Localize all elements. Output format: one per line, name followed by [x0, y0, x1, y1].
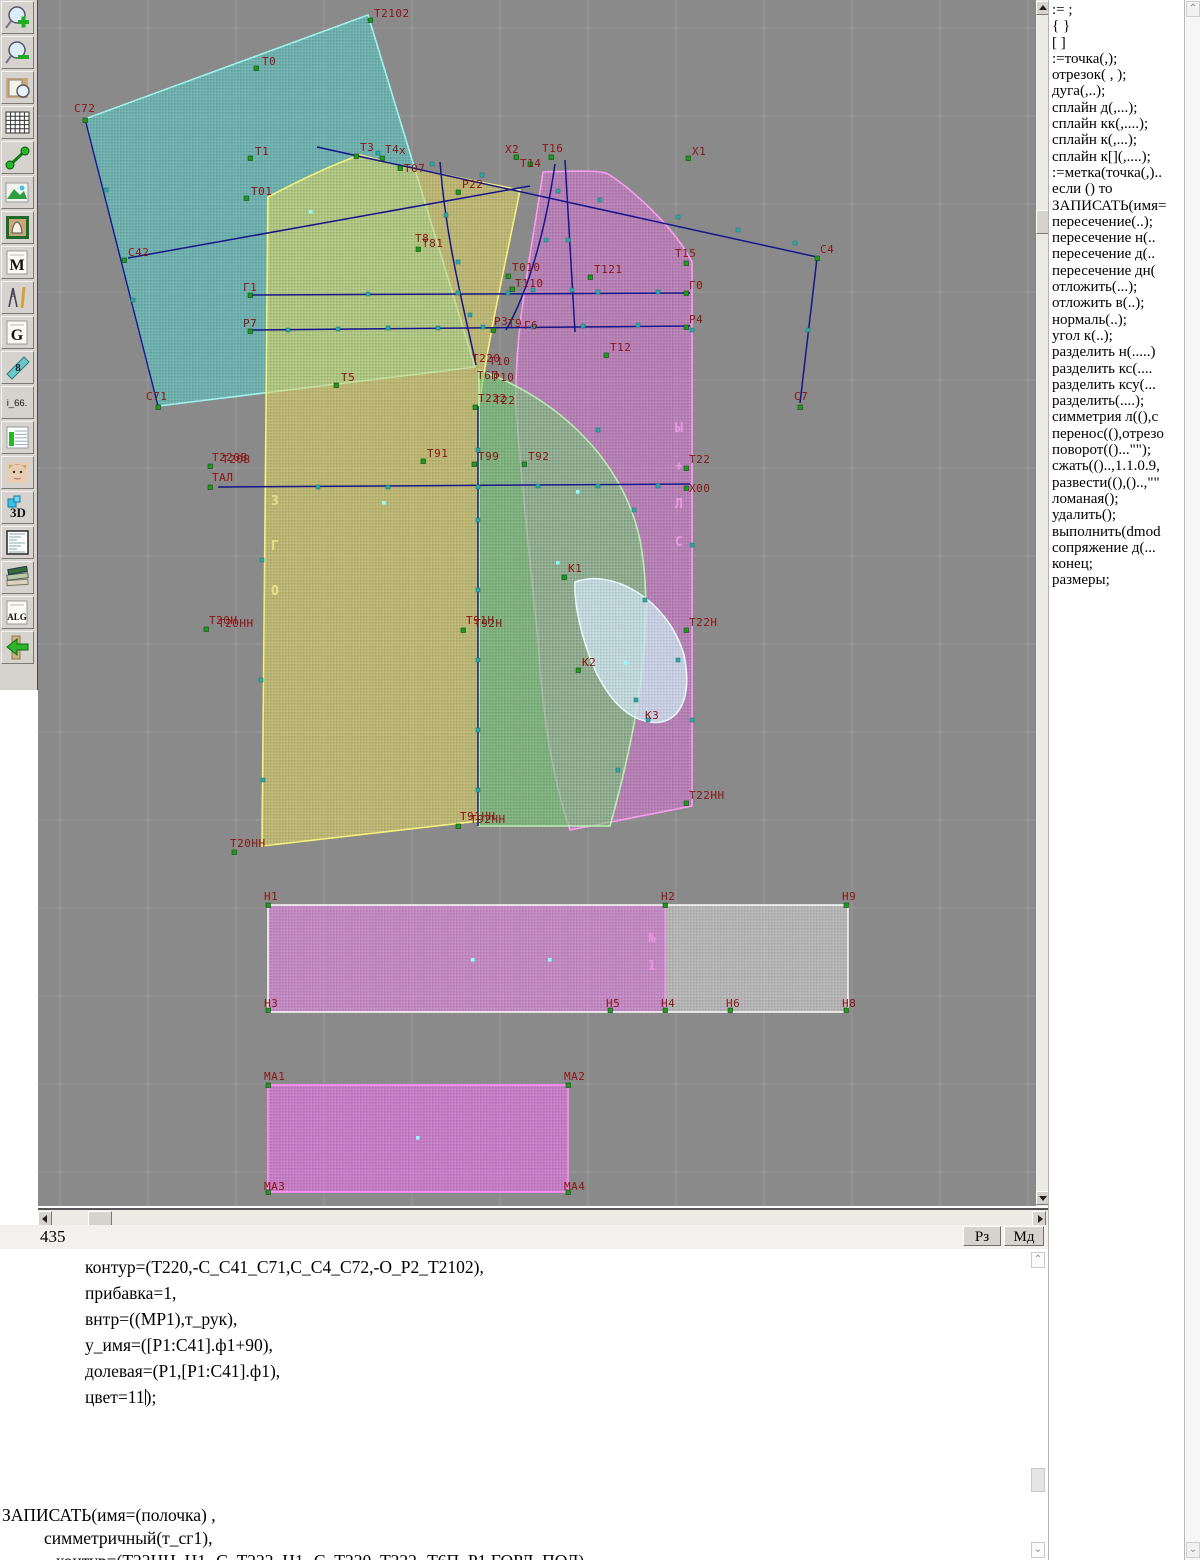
- point-marker: [368, 18, 373, 23]
- line-node-marker: [506, 291, 510, 295]
- command-list-item[interactable]: конец;: [1052, 556, 1185, 572]
- i66-icon[interactable]: i_66.: [1, 386, 34, 419]
- point-label: С4: [820, 243, 834, 256]
- point-label: Т20В: [222, 453, 251, 466]
- point-label: Т1: [255, 145, 269, 158]
- point-label: Х00: [689, 482, 710, 495]
- point-label: Т20НН: [218, 617, 254, 630]
- line-node-marker: [476, 588, 480, 592]
- point-marker: [254, 66, 259, 71]
- point-marker: [815, 256, 820, 261]
- svg-text:ALG: ALG: [7, 612, 27, 622]
- segment-icon[interactable]: [1, 141, 34, 174]
- fabric-strip-texture: [268, 905, 848, 1012]
- up-arrow-icon: [1039, 5, 1047, 10]
- svg-text:G: G: [11, 327, 24, 344]
- point-marker: [266, 1083, 271, 1088]
- point-label: Н4: [661, 997, 675, 1010]
- line-node-marker: [131, 298, 135, 302]
- line-node-marker: [690, 718, 694, 722]
- point-label: Г1: [243, 281, 257, 294]
- command-list-item[interactable]: дуга(,..);: [1052, 83, 1185, 99]
- point-label: Х2: [505, 143, 519, 156]
- list-icon[interactable]: [1, 526, 34, 559]
- command-list-item[interactable]: { }: [1052, 18, 1185, 34]
- model-photo-icon[interactable]: [1, 456, 34, 489]
- piece-dot-marker: [416, 1136, 420, 1140]
- scroll-left-button[interactable]: [38, 1211, 52, 1226]
- point-label: Т16: [542, 142, 563, 155]
- piece-dot-marker: [309, 210, 313, 214]
- point-marker: [380, 156, 385, 161]
- point-marker: [684, 628, 689, 633]
- point-label: Н8: [842, 997, 856, 1010]
- pattern-frame-icon[interactable]: [1, 211, 34, 244]
- command-list-panel: := ;{ }[ ]:=точка(,);отрезок( , );дуга(,…: [1048, 0, 1185, 1560]
- line-node-marker: [570, 288, 574, 292]
- point-label: Т121: [594, 263, 623, 276]
- scrollbar-thumb[interactable]: [1031, 1468, 1045, 1492]
- point-marker: [232, 850, 237, 855]
- code-line: симметричный(т_сг1),: [44, 1528, 212, 1549]
- point-label: Т3: [360, 141, 374, 154]
- code-editor[interactable]: контур=(Т220,-С_С41_С71,С_С4_С72,-О_Р2_Т…: [0, 1249, 1029, 1560]
- command-list-item[interactable]: поворот(()..."");: [1052, 442, 1185, 458]
- point-label: Т01: [251, 185, 272, 198]
- point-marker: [844, 903, 849, 908]
- line-node-marker: [690, 328, 694, 332]
- piece-vertical-mark: №: [648, 931, 657, 946]
- line-node-marker: [598, 198, 602, 202]
- point-marker: [208, 464, 213, 469]
- command-list-item[interactable]: размеры;: [1052, 572, 1185, 588]
- point-marker: [684, 325, 689, 330]
- point-marker: [354, 154, 359, 159]
- command-list-item[interactable]: отложить в(..);: [1052, 295, 1185, 311]
- point-marker: [208, 485, 213, 490]
- command-list-item[interactable]: [ ]: [1052, 35, 1185, 51]
- piece-dot-marker: [548, 958, 552, 962]
- point-marker: [456, 824, 461, 829]
- command-list-item[interactable]: пересечение(..);: [1052, 214, 1185, 230]
- command-list-item[interactable]: :=метка(точка(,)..: [1052, 165, 1185, 181]
- point-marker: [549, 155, 554, 160]
- point-label: К3: [645, 709, 659, 722]
- line-node-marker: [544, 238, 548, 242]
- line-node-marker: [386, 485, 390, 489]
- command-list-item[interactable]: симметрия л((),c: [1052, 409, 1185, 425]
- point-label: Т2102: [374, 7, 410, 20]
- command-list-item[interactable]: перенос((),отрезо: [1052, 426, 1185, 442]
- rz-mode-button[interactable]: Рз: [963, 1226, 1001, 1246]
- command-list-item[interactable]: нормаль(..);: [1052, 312, 1185, 328]
- point-label: Т010: [512, 261, 541, 274]
- command-list-item[interactable]: сплайн д(,...);: [1052, 100, 1185, 116]
- point-label: Т81: [422, 237, 443, 250]
- point-marker: [461, 628, 466, 633]
- line-node-marker: [476, 728, 480, 732]
- toolbar: MAG8i_66.3DALG: [0, 0, 38, 690]
- line-node-marker: [260, 558, 264, 562]
- point-label: Н2: [661, 890, 675, 903]
- ruler-icon[interactable]: 8: [1, 351, 34, 384]
- point-label: Т22: [494, 394, 515, 407]
- command-list-item[interactable]: сплайн к(,...);: [1052, 132, 1185, 148]
- point-marker: [663, 903, 668, 908]
- code-line: прибавка=1,: [85, 1283, 176, 1304]
- piece-vertical-mark: Л: [675, 497, 683, 512]
- down-arrow-icon: [1039, 1196, 1047, 1201]
- line-node-marker: [444, 213, 448, 217]
- point-label: Р4: [689, 313, 703, 326]
- line-node-marker: [690, 543, 694, 547]
- line-node-marker: [536, 484, 540, 488]
- point-marker: [798, 405, 803, 410]
- line-node-marker: [476, 518, 480, 522]
- point-label: Т22НН: [689, 789, 725, 802]
- line-node-marker: [596, 484, 600, 488]
- line-node-marker: [596, 290, 600, 294]
- line-node-marker: [261, 778, 265, 782]
- point-label: Т22: [689, 453, 710, 466]
- command-list-item[interactable]: сопряжение д(...: [1052, 540, 1185, 556]
- point-label: Г0: [689, 279, 703, 292]
- command-list-item[interactable]: развести((),()..,"": [1052, 475, 1185, 491]
- point-label: х: [399, 144, 406, 157]
- point-marker: [83, 118, 88, 123]
- point-marker: [686, 156, 691, 161]
- point-label: Т92НН: [470, 813, 506, 826]
- point-label: К2: [582, 656, 596, 669]
- point-label: МА1: [264, 1070, 285, 1083]
- command-list-item[interactable]: если () то: [1052, 181, 1185, 197]
- line-node-marker: [476, 788, 480, 792]
- line-node-marker: [316, 485, 320, 489]
- command-list-item[interactable]: отрезок( , );: [1052, 67, 1185, 83]
- command-list-item[interactable]: выполнить(dmod: [1052, 524, 1185, 540]
- piece-dot-marker: [624, 661, 628, 665]
- scroll-right-button[interactable]: [1032, 1211, 1046, 1226]
- code-line: ЗАПИСАТЬ(имя=(полочка) ,: [2, 1505, 216, 1526]
- command-list-scrollbar[interactable]: ⌃ ⌄: [1184, 0, 1200, 1560]
- image-icon[interactable]: [1, 176, 34, 209]
- command-list-item[interactable]: пересечение д(..: [1052, 246, 1185, 262]
- md-mode-button[interactable]: Мд: [1004, 1226, 1044, 1246]
- point-label: Н9: [842, 890, 856, 903]
- point-marker: [506, 274, 511, 279]
- point-marker: [684, 261, 689, 266]
- svg-text:A: A: [11, 294, 15, 300]
- point-marker: [566, 1083, 571, 1088]
- svg-text:M: M: [9, 257, 24, 274]
- point-label: Т0: [262, 55, 276, 68]
- svg-text:i_66.: i_66.: [7, 398, 28, 409]
- point-label: Т14: [520, 157, 541, 170]
- code-line: контур=(Т22НН_Н1,-С_Т222_Н1,-С_Т220_Т222…: [56, 1551, 589, 1560]
- line-node-marker: [556, 189, 560, 193]
- zoom-in-icon[interactable]: [1, 1, 34, 34]
- line-node-marker: [476, 658, 480, 662]
- point-marker: [334, 383, 339, 388]
- point-marker: [122, 258, 127, 263]
- code-line-with-cursor: цвет=11);: [85, 1387, 156, 1408]
- code-line: контур=(Т220,-С_С41_С71,С_С4_С72,-О_Р2_Т…: [85, 1257, 484, 1278]
- point-label: Т15: [675, 247, 696, 260]
- svg-text:8: 8: [15, 362, 21, 374]
- line-node-marker: [386, 326, 390, 330]
- g-doc-icon[interactable]: G: [1, 316, 34, 349]
- point-marker: [421, 459, 426, 464]
- point-marker: [684, 486, 689, 491]
- point-marker: [684, 801, 689, 806]
- line-node-marker: [806, 328, 810, 332]
- scroll-up-button[interactable]: ⌃: [1031, 1252, 1045, 1268]
- point-label: Н6: [726, 997, 740, 1010]
- command-list-item[interactable]: сплайн к[](,....);: [1052, 149, 1185, 165]
- point-label: Т10: [489, 355, 510, 368]
- 3d-icon[interactable]: 3D: [1, 491, 34, 524]
- line-node-marker: [636, 323, 640, 327]
- point-marker: [588, 275, 593, 280]
- point-label: Т12: [610, 341, 631, 354]
- command-list: := ;{ }[ ]:=точка(,);отрезок( , );дуга(,…: [1049, 0, 1185, 589]
- point-label: Т20НН: [230, 837, 266, 850]
- piece-dot-marker: [471, 958, 475, 962]
- command-list-item[interactable]: пересечение дн(: [1052, 263, 1185, 279]
- line-node-marker: [481, 325, 485, 329]
- command-list-item[interactable]: ЗАПИСАТЬ(имя=: [1052, 198, 1185, 214]
- line-node-marker: [286, 328, 290, 332]
- line-node-marker: [656, 484, 660, 488]
- point-label: МА3: [264, 1180, 285, 1193]
- command-list-item[interactable]: удалить();: [1052, 507, 1185, 523]
- point-label: Г6: [524, 319, 538, 332]
- line-node-marker: [468, 313, 472, 317]
- drawing-canvas[interactable]: Ы+ЛСЗГО№1Т2102Т0С72Т1Т01Т3Т4хТ07Р22Х2Т14…: [38, 0, 1035, 1206]
- point-label: Р3: [494, 315, 508, 328]
- point-marker: [510, 287, 515, 292]
- point-label: С42: [128, 246, 149, 259]
- line-node-marker: [259, 678, 263, 682]
- point-label: Т99: [478, 450, 499, 463]
- application-window: MAG8i_66.3DALG Ы+ЛСЗГО№1Т2102Т0С72Т1Т01Т…: [0, 0, 1200, 1560]
- point-label: Т110: [515, 277, 544, 290]
- svg-text:3D: 3D: [10, 505, 26, 520]
- point-label: Т92: [528, 450, 549, 463]
- piece-dot-marker: [576, 490, 580, 494]
- point-marker: [266, 903, 271, 908]
- command-list-item[interactable]: :=точка(,);: [1052, 51, 1185, 67]
- point-marker: [522, 462, 527, 467]
- command-list-item[interactable]: ломаная();: [1052, 491, 1185, 507]
- line-node-marker: [480, 173, 484, 177]
- line-node-marker: [596, 428, 600, 432]
- point-label: Х1: [692, 145, 706, 158]
- point-label: С71: [146, 390, 167, 403]
- status-bar: 435 Рз Мд: [0, 1225, 1048, 1249]
- line-node-marker: [634, 698, 638, 702]
- point-marker: [562, 575, 567, 580]
- command-list-item[interactable]: отложить(...);: [1052, 279, 1185, 295]
- point-marker: [248, 156, 253, 161]
- point-marker: [491, 328, 496, 333]
- piece-vertical-mark: З: [271, 494, 279, 509]
- status-value: 435: [40, 1227, 66, 1247]
- preview-icon[interactable]: [1, 71, 34, 104]
- line-node-marker: [430, 162, 434, 166]
- line-node-marker: [793, 241, 797, 245]
- point-label: С7: [794, 390, 808, 403]
- zoom-out-icon[interactable]: [1, 36, 34, 69]
- point-label: Р22: [462, 178, 483, 191]
- point-label: Н1: [264, 890, 278, 903]
- point-label: ТАЛ: [212, 471, 233, 484]
- command-list-item[interactable]: сжать(()..,1.1.0.9,: [1052, 458, 1185, 474]
- alg-icon[interactable]: ALG: [1, 596, 34, 629]
- point-label: МА4: [564, 1180, 585, 1193]
- command-list-item[interactable]: угол к(..);: [1052, 328, 1185, 344]
- piece-vertical-mark: Г: [271, 539, 279, 554]
- piece-vertical-mark: +: [675, 459, 683, 474]
- point-marker: [472, 462, 477, 467]
- command-list-item[interactable]: сплайн кк(,....);: [1052, 116, 1185, 132]
- point-label: Т92Н: [474, 617, 503, 630]
- table-chart-icon[interactable]: [1, 421, 34, 454]
- line-node-marker: [104, 188, 108, 192]
- point-label: Т9: [508, 317, 522, 330]
- command-list-item[interactable]: пересечение н(..: [1052, 230, 1185, 246]
- line-node-marker: [376, 151, 380, 155]
- pattern-drawing: Ы+ЛСЗГО№1Т2102Т0С72Т1Т01Т3Т4хТ07Р22Х2Т14…: [38, 0, 1035, 1206]
- point-label: Т5: [341, 371, 355, 384]
- line-node-marker: [436, 326, 440, 330]
- scroll-up-button[interactable]: ⌃: [1186, 1, 1200, 17]
- point-marker: [604, 353, 609, 358]
- point-label: Т91: [427, 447, 448, 460]
- editor-scrollbar[interactable]: ⌃ ⌄: [1029, 1249, 1047, 1560]
- command-list-item[interactable]: разделить ксу(...: [1052, 377, 1185, 393]
- grid-icon[interactable]: [1, 106, 34, 139]
- point-marker: [684, 466, 689, 471]
- piece-vertical-mark: С: [675, 535, 683, 550]
- piece-vertical-mark: Ы: [675, 421, 683, 436]
- point-marker: [576, 668, 581, 673]
- point-label: С72: [74, 102, 95, 115]
- scroll-down-button[interactable]: ⌄: [1186, 1542, 1200, 1558]
- m-doc-icon[interactable]: M: [1, 246, 34, 279]
- point-label: Т22Н: [689, 616, 718, 629]
- line-node-marker: [366, 292, 370, 296]
- point-marker: [456, 190, 461, 195]
- line-node-marker: [581, 324, 585, 328]
- canvas-vertical-scrollbar[interactable]: [1035, 0, 1049, 1206]
- command-list-item[interactable]: разделить кс(....: [1052, 361, 1185, 377]
- line-node-marker: [676, 658, 680, 662]
- point-label: Т4: [385, 143, 399, 156]
- line-node-marker: [643, 598, 647, 602]
- line-node-marker: [632, 508, 636, 512]
- command-list-item[interactable]: разделить(....);: [1052, 393, 1185, 409]
- line-node-marker: [476, 485, 480, 489]
- command-list-item[interactable]: := ;: [1052, 2, 1185, 18]
- code-line: долевая=(Р1,[Р1:С41].ф1),: [85, 1361, 280, 1382]
- line-node-marker: [336, 327, 340, 331]
- point-label: К1: [568, 562, 582, 575]
- line-node-marker: [676, 215, 680, 219]
- point-label: Н5: [606, 997, 620, 1010]
- books-icon[interactable]: [1, 561, 34, 594]
- code-line: у_имя=([Р1:С41].ф1+90),: [85, 1335, 273, 1356]
- scrollbar-thumb[interactable]: [88, 1211, 112, 1226]
- command-list-item[interactable]: разделить н(.....): [1052, 344, 1185, 360]
- piece-dot-marker: [382, 501, 386, 505]
- point-label: Т07: [404, 162, 425, 175]
- point-marker: [416, 247, 421, 252]
- point-marker: [204, 627, 209, 632]
- point-marker: [473, 405, 478, 410]
- line-node-marker: [736, 228, 740, 232]
- point-label: Р7: [243, 317, 257, 330]
- point-label: Н3: [264, 997, 278, 1010]
- exit-icon[interactable]: [1, 631, 34, 664]
- scroll-down-button[interactable]: ⌄: [1031, 1542, 1045, 1558]
- code-line: внтр=((МР1),т_рук),: [85, 1309, 237, 1330]
- point-marker: [398, 166, 403, 171]
- piece-vertical-mark: 1: [648, 959, 656, 974]
- line-node-marker: [656, 290, 660, 294]
- piece-dot-marker: [556, 561, 560, 565]
- line-node-marker: [616, 768, 620, 772]
- piece-vertical-mark: О: [271, 584, 279, 599]
- line-node-marker: [456, 291, 460, 295]
- point-marker: [244, 196, 249, 201]
- point-label: МА2: [564, 1070, 585, 1083]
- point-marker: [156, 405, 161, 410]
- point-label: Р10: [493, 371, 514, 384]
- line-node-marker: [456, 260, 460, 264]
- point-marker: [684, 291, 689, 296]
- drafting-icon[interactable]: A: [1, 281, 34, 314]
- line-node-marker: [566, 238, 570, 242]
